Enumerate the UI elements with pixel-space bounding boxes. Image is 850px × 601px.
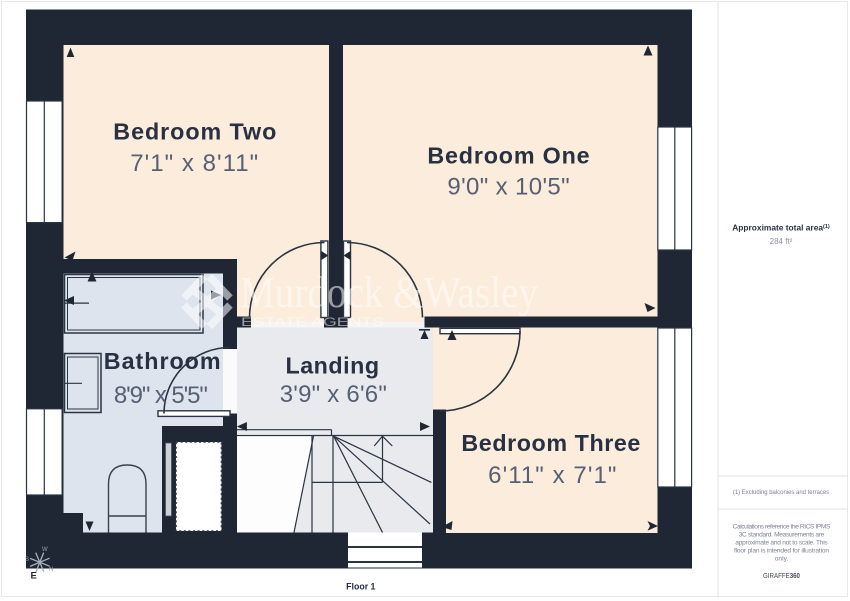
- svg-text:Landing: Landing: [285, 353, 379, 379]
- svg-text:Floor 1: Floor 1: [346, 582, 375, 592]
- svg-text:3C standard. Measurements are: 3C standard. Measurements are: [739, 532, 825, 539]
- svg-text:S: S: [25, 557, 29, 563]
- svg-text:284 ft²: 284 ft²: [770, 237, 793, 246]
- svg-text:approximate and not to scale.: approximate and not to scale. This: [735, 540, 828, 547]
- svg-text:Bedroom Two: Bedroom Two: [113, 119, 276, 145]
- svg-text:floor plan is intended for ill: floor plan is intended for illustration: [734, 548, 829, 555]
- svg-text:3'9" x 6'6": 3'9" x 6'6": [280, 381, 387, 408]
- svg-text:ESTATE AGENTS: ESTATE AGENTS: [241, 315, 384, 329]
- svg-text:W: W: [42, 547, 48, 553]
- svg-text:Approximate total area(1): Approximate total area(1): [732, 223, 830, 233]
- svg-text:8'9" x 5'5": 8'9" x 5'5": [114, 382, 208, 409]
- svg-text:(1) Excluding balconies and te: (1) Excluding balconies and terraces: [733, 489, 830, 496]
- svg-text:Bedroom One: Bedroom One: [427, 143, 589, 169]
- svg-text:Bathroom: Bathroom: [104, 348, 221, 374]
- svg-text:9'0" x 10'5": 9'0" x 10'5": [447, 174, 569, 201]
- svg-text:only.: only.: [775, 556, 789, 563]
- svg-text:Bedroom Three: Bedroom Three: [461, 430, 640, 456]
- svg-text:N: N: [49, 567, 53, 573]
- svg-text:Murdock &Wasley: Murdock &Wasley: [240, 268, 538, 317]
- svg-text:7'1" x 8'11": 7'1" x 8'11": [130, 150, 258, 177]
- svg-text:6'11" x 7'1": 6'11" x 7'1": [488, 462, 616, 489]
- svg-text:GIRAFFE360: GIRAFFE360: [763, 571, 800, 580]
- svg-text:Calculations reference the RIC: Calculations reference the RICS IPMS: [733, 524, 831, 531]
- svg-text:E: E: [31, 571, 37, 582]
